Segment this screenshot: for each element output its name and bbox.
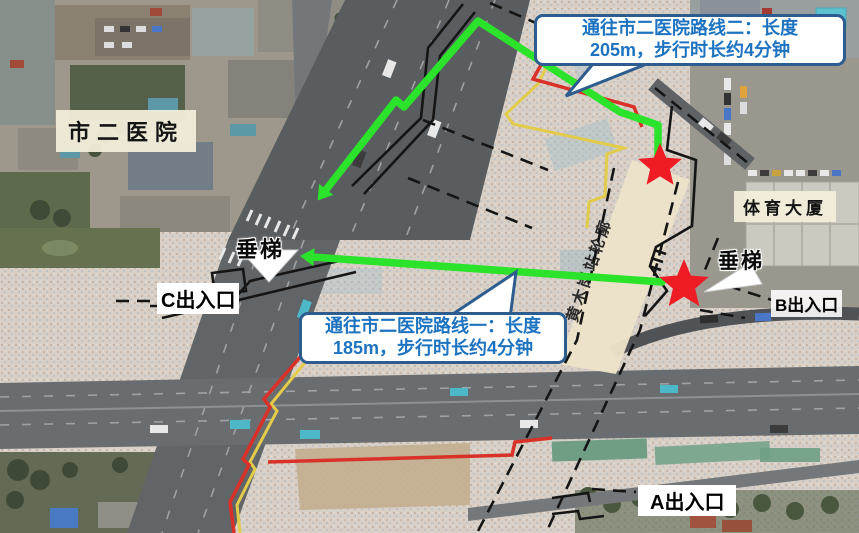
callout-route-1-line2: 185m，步行时长约4分钟 (302, 338, 564, 360)
exit-a-label: A出入口 (638, 485, 736, 516)
elevator-label-right: 垂梯 (718, 245, 764, 275)
sports-building-label: 体育大厦 (734, 191, 836, 222)
hospital-label: 市二医院 (56, 110, 196, 152)
callout-route-2-line2: 205m，步行时长约4分钟 (537, 40, 843, 62)
callout-route-2: 通往市二医院路线二：长度 205m，步行时长约4分钟 (534, 14, 846, 66)
elevator-label-left: 垂梯 (236, 232, 284, 264)
callout-route-2-line1: 通往市二医院路线二：长度 (537, 18, 843, 40)
exit-c-label: C出入口 (157, 283, 239, 314)
exit-b-label: B出入口 (771, 290, 842, 317)
callout-route-1-line1: 通往市二医院路线一：长度 (302, 316, 564, 338)
callout-route-1: 通往市二医院路线一：长度 185m，步行时长约4分钟 (299, 312, 567, 364)
map-container: 黄木岗站轮廓 (0, 0, 859, 533)
